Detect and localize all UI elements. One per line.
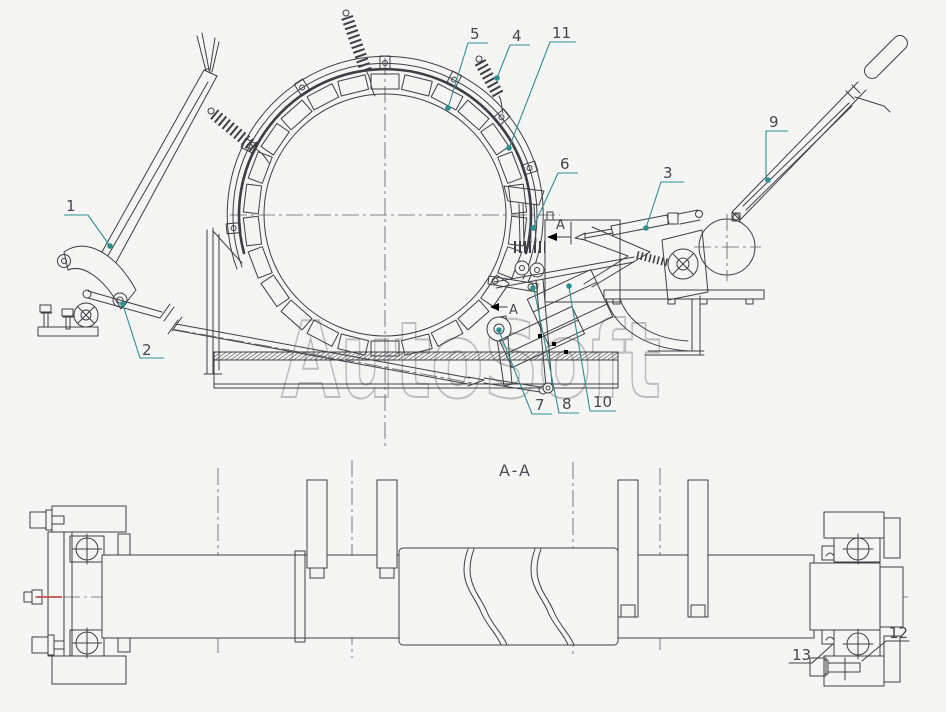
section-plane-mark-1: A (547, 218, 571, 244)
section-view: A-A (24, 460, 909, 686)
beater-plate (688, 480, 708, 617)
main-assembly-view: A A (38, 10, 910, 450)
beater-plate (377, 480, 397, 568)
beater-plate (618, 480, 638, 617)
callout-label-7: 7 (535, 396, 545, 414)
callout-2: 2 (120, 301, 164, 359)
callout-label-2: 2 (142, 341, 152, 359)
callout-label-6: 6 (560, 155, 570, 173)
callout-label-8: 8 (562, 395, 572, 413)
tension-spring-top (343, 10, 375, 96)
callout-1: 1 (64, 197, 113, 249)
callout-label-13: 13 (792, 646, 811, 664)
callout-label-1: 1 (66, 197, 76, 215)
drawing-canvas: AutoSoft (0, 0, 946, 712)
callout-4: 4 (494, 27, 530, 81)
callout-label-4: 4 (512, 27, 522, 45)
callout-6: 6 (530, 155, 578, 231)
callout-label-10: 10 (593, 393, 612, 411)
beater-plate (307, 480, 327, 568)
callout-label-12: 12 (889, 624, 908, 642)
shaft-hub (810, 563, 880, 630)
section-plane-letter-1: A (556, 218, 565, 233)
section-plane-letter-2: A (509, 303, 518, 318)
callout-label-3: 3 (663, 164, 673, 182)
turnbuckle-rod (575, 210, 703, 240)
section-title: A-A (499, 461, 532, 480)
callout-label-9: 9 (769, 113, 779, 131)
callout-label-11: 11 (552, 24, 571, 42)
left-lever-assembly (38, 33, 219, 336)
helical-drum (399, 548, 618, 645)
lever-grip (862, 33, 911, 82)
shaft (102, 480, 903, 645)
hand-lever (732, 33, 910, 221)
callout-label-5: 5 (470, 25, 480, 43)
sector-plate (64, 246, 136, 309)
